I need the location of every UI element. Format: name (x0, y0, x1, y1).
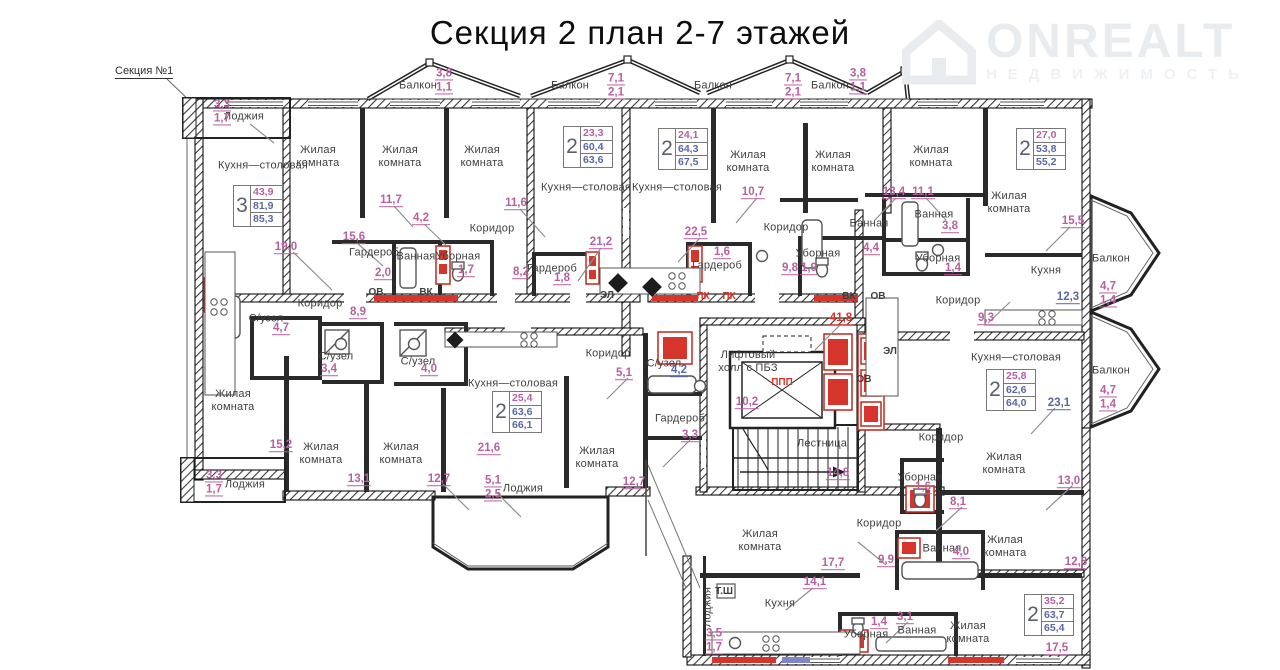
duct-label: ППП (771, 377, 793, 389)
apartment-area-row: 64,3 (676, 143, 707, 157)
area-value-label: 19,0 (274, 241, 298, 255)
area-value-label: 9,9 (877, 554, 895, 568)
apartment-area-row: 53,8 (1034, 143, 1065, 157)
area-value: 7,1 (607, 72, 625, 85)
apartment-area-row: 35,2 (1042, 595, 1073, 609)
area-value: 21,2 (589, 236, 613, 249)
area-value: 8,2 (512, 266, 530, 279)
area-value: 3,3 (681, 429, 699, 442)
area-value: 14,1 (803, 576, 827, 589)
area-value: 12,7 (427, 473, 451, 486)
area-value-label: 9,8 (781, 262, 799, 276)
area-value-label: 17,5 (1045, 642, 1069, 656)
area-value-label: 1,6 (914, 481, 932, 495)
apartment-area-row: 24,1 (676, 129, 707, 143)
area-value-label: 7,12,1 (607, 72, 625, 99)
area-value-label: 5,1 (615, 367, 633, 381)
area-value-label: 4,0 (952, 546, 970, 560)
apartment-table: 235,263,765,4 (1024, 594, 1074, 636)
area-value-label: 3,3 (681, 429, 699, 443)
room-label: Жилая комната (739, 528, 782, 554)
apartment-room-count: 2 (987, 370, 1004, 410)
area-value-label: 11,1 (911, 186, 935, 200)
area-value-label: 8,9 (349, 306, 367, 320)
area-value: 4,0 (952, 546, 970, 559)
area-value: 4,7 (1099, 384, 1117, 397)
apartment-room-count: 2 (564, 127, 581, 167)
area-value: 9,3 (977, 312, 995, 325)
area-value: 3,4 (320, 363, 338, 376)
area-value: 4,0 (420, 363, 438, 376)
room-label: Лоджия (225, 479, 265, 492)
area-value-label: 12,3 (1056, 291, 1080, 305)
duct-label: ОВ (857, 374, 872, 386)
apartment-room-count: 2 (1017, 129, 1034, 169)
area-value-label: 4,0 (420, 363, 438, 377)
area-value-secondary: 2,5 (484, 488, 502, 501)
apartment-area-row: 64,0 (1004, 397, 1035, 410)
room-label: Кухня—столовая (468, 378, 558, 391)
area-value-label: 11,7 (379, 194, 403, 208)
area-value-label: 3,81,1 (849, 67, 867, 94)
apartment-area-row: 67,5 (676, 156, 707, 169)
duct-label: ВК (419, 287, 432, 299)
room-label: Жилая комната (947, 620, 990, 646)
area-value-label: 3,31,7 (205, 469, 223, 496)
area-value: 5,1 (484, 474, 502, 487)
room-label: Ванная (898, 625, 937, 638)
area-value-label: 12,7 (427, 473, 451, 487)
plan-labels-layer: ЛоджияКухня—столоваяЖилая комнатаЖилая к… (0, 0, 1280, 670)
area-value-label: 3,1 (896, 611, 914, 625)
area-value: 1,4 (944, 262, 962, 275)
room-label: Кухня (1031, 265, 1061, 278)
area-value-label: 9,3 (977, 312, 995, 326)
room-label: Кухня—столовая (632, 182, 722, 195)
room-label: Коридор (470, 223, 515, 236)
area-value-label: 13,0 (1057, 475, 1081, 489)
area-value-label: 1,4 (944, 262, 962, 276)
area-value-label: 13,1 (347, 473, 371, 487)
duct-label: ОВ (369, 287, 384, 299)
apartment-table: 225,862,664,0 (986, 369, 1036, 411)
area-value-label: 1,6 (713, 246, 731, 260)
area-value-label: 2,0 (374, 267, 392, 281)
area-value-label: 15,5 (1061, 215, 1085, 229)
area-value: 1,8 (553, 272, 571, 285)
area-value: 3,5 (705, 627, 723, 640)
room-label: Жилая комната (984, 534, 1027, 560)
apartment-area-row: 43,9 (251, 186, 282, 200)
area-value-secondary: 1,7 (705, 641, 723, 654)
area-value-secondary: 1,1 (849, 81, 867, 94)
area-value: 10,7 (741, 186, 765, 199)
area-value: 19,0 (274, 241, 298, 254)
area-value: 13,0 (1057, 475, 1081, 488)
area-value-secondary: 2,1 (607, 86, 625, 99)
duct-label: ВК (842, 291, 855, 303)
area-value-label: 8,2 (512, 266, 530, 280)
area-value-label: 13,4 (882, 186, 906, 200)
area-value: 22,5 (684, 226, 708, 239)
area-value: 12,3 (1056, 291, 1080, 304)
area-value-label: 14,1 (803, 576, 827, 590)
area-value: 9,8 (781, 262, 799, 275)
area-value-label: 4,4 (862, 242, 880, 256)
room-label: Балкон (811, 80, 849, 93)
apartment-area-row: 63,6 (510, 406, 541, 420)
room-label: Жилая комната (576, 445, 619, 471)
area-value-label: 14,8 (826, 467, 850, 481)
room-label: Жилая комната (212, 388, 255, 414)
area-value-label: 4,2 (670, 364, 688, 378)
room-label: Коридор (936, 295, 981, 308)
room-label: Балкон (1092, 365, 1130, 378)
room-label: Жилая комната (461, 144, 504, 170)
area-value: 10,2 (735, 396, 759, 409)
area-value-label: 15,2 (269, 439, 293, 453)
duct-label: ОВ (871, 291, 886, 303)
room-label: Гардероб (655, 413, 705, 426)
room-label: Гардероб (349, 247, 399, 260)
area-value: 41,8 (829, 312, 853, 325)
room-label: Лоджия (702, 587, 715, 627)
room-label: Уборная (436, 251, 481, 264)
area-value-label: 3,81,1 (435, 67, 453, 94)
area-value-label: 8,1 (949, 496, 967, 510)
area-value: 1,9 (800, 262, 818, 275)
room-label: Балкон (1092, 253, 1130, 266)
area-value: 3,3 (213, 98, 231, 111)
area-value: 15,5 (1061, 215, 1085, 228)
area-value: 1,4 (870, 616, 888, 629)
room-label: Жилая комната (379, 144, 422, 170)
area-value: 1,6 (713, 246, 731, 259)
room-label: Гардероб (692, 260, 742, 273)
area-value: 8,1 (949, 496, 967, 509)
apartment-table: 343,981,985,3 (233, 185, 283, 227)
area-value: 14,8 (826, 467, 850, 480)
apartment-area-row: 25,4 (510, 392, 541, 406)
apartment-area-row: 55,2 (1034, 156, 1065, 169)
area-value: 12,7 (622, 476, 646, 489)
room-label: Лоджия (503, 483, 543, 496)
area-value-label: 3,4 (320, 363, 338, 377)
area-value-secondary: 1,1 (435, 81, 453, 94)
apartment-area-row: 60,4 (581, 141, 612, 155)
area-value: 11,7 (379, 194, 403, 207)
area-value: 21,6 (477, 442, 501, 455)
area-value-label: 21,2 (589, 236, 613, 250)
area-value: 7,1 (784, 72, 802, 85)
area-value: 3,3 (205, 469, 223, 482)
area-value: 3,8 (435, 67, 453, 80)
area-value: 12,8 (1064, 556, 1088, 569)
area-value: 4,4 (862, 242, 880, 255)
area-value: 11,1 (911, 186, 935, 199)
area-value: 13,4 (882, 186, 906, 199)
room-label: Коридор (919, 432, 964, 445)
room-label: С/узел (319, 351, 354, 364)
area-value-label: 23,1 (1047, 397, 1071, 411)
area-value: 15,6 (342, 231, 366, 244)
room-label: Жилая комната (300, 441, 343, 467)
room-label: Кухня—столовая (541, 182, 631, 195)
area-value-label: 1,4 (870, 616, 888, 630)
room-label: Балкон (551, 80, 589, 93)
room-label: Лифтовый холл с ПБЗ (718, 349, 777, 375)
area-value-label: 41,8 (829, 312, 853, 326)
area-value-label: 17,7 (821, 557, 845, 571)
room-label: Уборная (844, 629, 889, 642)
apartment-area-row: 25,8 (1004, 370, 1035, 384)
apartment-area-row: 65,4 (1042, 622, 1073, 635)
area-value: 17,7 (821, 557, 845, 570)
duct-label: Т.Ш (715, 586, 733, 598)
room-label: Коридор (586, 348, 631, 361)
area-value: 5,1 (615, 367, 633, 380)
area-value: 17,5 (1045, 642, 1069, 655)
area-value-label: 4,71,4 (1099, 280, 1117, 307)
area-value-label: 21,6 (477, 442, 501, 456)
area-value: 1,7 (457, 264, 475, 277)
apartment-table: 224,164,367,5 (658, 128, 708, 170)
area-value-label: 5,12,5 (484, 474, 502, 501)
room-label: Коридор (857, 518, 902, 531)
area-value-label: 22,5 (684, 226, 708, 240)
area-value-label: 4,7 (272, 322, 290, 336)
duct-label: ЭЛ (600, 290, 614, 302)
area-value-label: 1,8 (553, 272, 571, 286)
room-label: Коридор (764, 222, 809, 235)
room-label: Ванная (397, 251, 436, 264)
apartment-table: 225,463,666,1 (492, 391, 542, 433)
room-label: Жилая комната (297, 144, 340, 170)
area-value-label: 3,31,7 (213, 98, 231, 125)
apartment-area-row: 63,6 (581, 154, 612, 167)
apartment-area-row: 66,1 (510, 419, 541, 432)
apartment-room-count: 3 (234, 186, 251, 226)
room-label: Кухня—столовая (971, 352, 1061, 365)
area-value-label: 3,51,7 (705, 627, 723, 654)
room-label: Кухня (765, 598, 795, 611)
apartment-room-count: 2 (659, 129, 676, 169)
area-value-secondary: 1,4 (1099, 294, 1117, 307)
room-label: Ванная (850, 218, 889, 231)
area-value-secondary: 1,4 (1099, 398, 1117, 411)
room-label: Лестница (797, 438, 847, 451)
area-value: 8,9 (349, 306, 367, 319)
area-value: 4,7 (272, 322, 290, 335)
apartment-area-row: 85,3 (251, 213, 282, 226)
area-value-label: 11,6 (504, 197, 528, 211)
area-value: 15,2 (269, 439, 293, 452)
area-value-label: 10,7 (741, 186, 765, 200)
area-value: 3,1 (896, 611, 914, 624)
area-value-secondary: 1,7 (213, 112, 231, 125)
room-label: Коридор (298, 298, 343, 311)
room-label: Жилая комната (910, 144, 953, 170)
duct-label: ПК (722, 291, 735, 303)
apartment-room-count: 2 (1025, 595, 1042, 635)
area-value-label: 7,12,1 (784, 72, 802, 99)
area-value-secondary: 2,1 (784, 86, 802, 99)
area-value-label: 4,2 (412, 212, 430, 226)
area-value-label: 3,8 (941, 220, 959, 234)
apartment-area-row: 63,7 (1042, 609, 1073, 623)
area-value: 4,2 (412, 212, 430, 225)
apartment-table: 223,360,463,6 (563, 126, 613, 168)
area-value: 1,6 (914, 481, 932, 494)
room-label: Жилая комната (380, 441, 423, 467)
area-value: 4,7 (1099, 280, 1117, 293)
room-label: Жилая комната (727, 149, 770, 175)
apartment-area-row: 27,0 (1034, 129, 1065, 143)
area-value: 3,8 (849, 67, 867, 80)
area-value-label: 12,7 (622, 476, 646, 490)
duct-label: ЭЛ (883, 346, 897, 358)
area-value-label: 4,71,4 (1099, 384, 1117, 411)
area-value-label: 12,8 (1064, 556, 1088, 570)
area-value: 2,0 (374, 267, 392, 280)
area-value-secondary: 1,7 (205, 483, 223, 496)
area-value: 13,1 (347, 473, 371, 486)
room-label: Жилая комната (988, 190, 1031, 216)
room-label: Балкон (694, 80, 732, 93)
area-value: 23,1 (1047, 397, 1071, 410)
apartment-table: 227,053,855,2 (1016, 128, 1066, 170)
room-label: Жилая комната (812, 149, 855, 175)
area-value: 4,2 (670, 364, 688, 377)
area-value-label: 1,9 (800, 262, 818, 276)
area-value: 11,6 (504, 197, 528, 210)
apartment-area-row: 62,6 (1004, 384, 1035, 398)
room-label: Кухня—столовая (218, 160, 308, 173)
area-value: 9,9 (877, 554, 895, 567)
area-value-label: 1,7 (457, 264, 475, 278)
apartment-area-row: 23,3 (581, 127, 612, 141)
apartment-room-count: 2 (493, 392, 510, 432)
room-label: Уборная (796, 248, 841, 261)
apartment-area-row: 81,9 (251, 200, 282, 214)
room-label: Жилая комната (983, 451, 1026, 477)
duct-label: ПК (696, 291, 709, 303)
area-value-label: 15,6 (342, 231, 366, 245)
area-value-label: 10,2 (735, 396, 759, 410)
area-value: 3,8 (941, 220, 959, 233)
room-label: Балкон (399, 80, 437, 93)
